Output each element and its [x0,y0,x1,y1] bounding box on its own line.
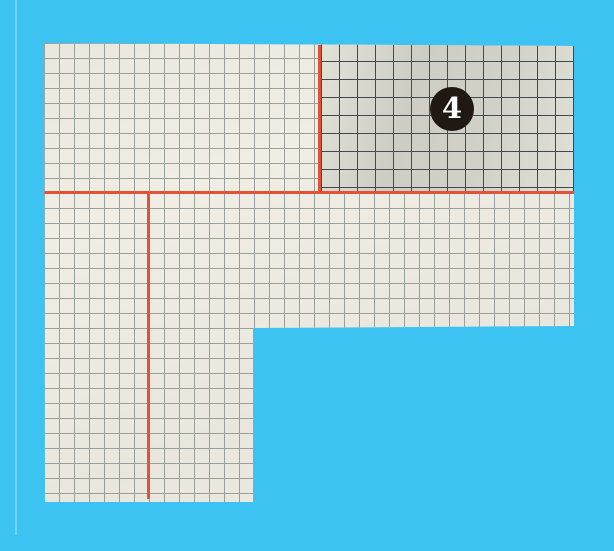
step-badge-label: 4 [442,94,462,123]
illustration-canvas: 4 [0,0,614,551]
graph-paper-sheet: 4 [44,43,574,502]
step-badge: 4 [430,87,474,131]
fold-line-vertical-upper [318,45,321,192]
background-crease-line [15,0,17,535]
fold-line-vertical-lower [147,194,150,499]
fold-line-horizontal [44,191,574,194]
